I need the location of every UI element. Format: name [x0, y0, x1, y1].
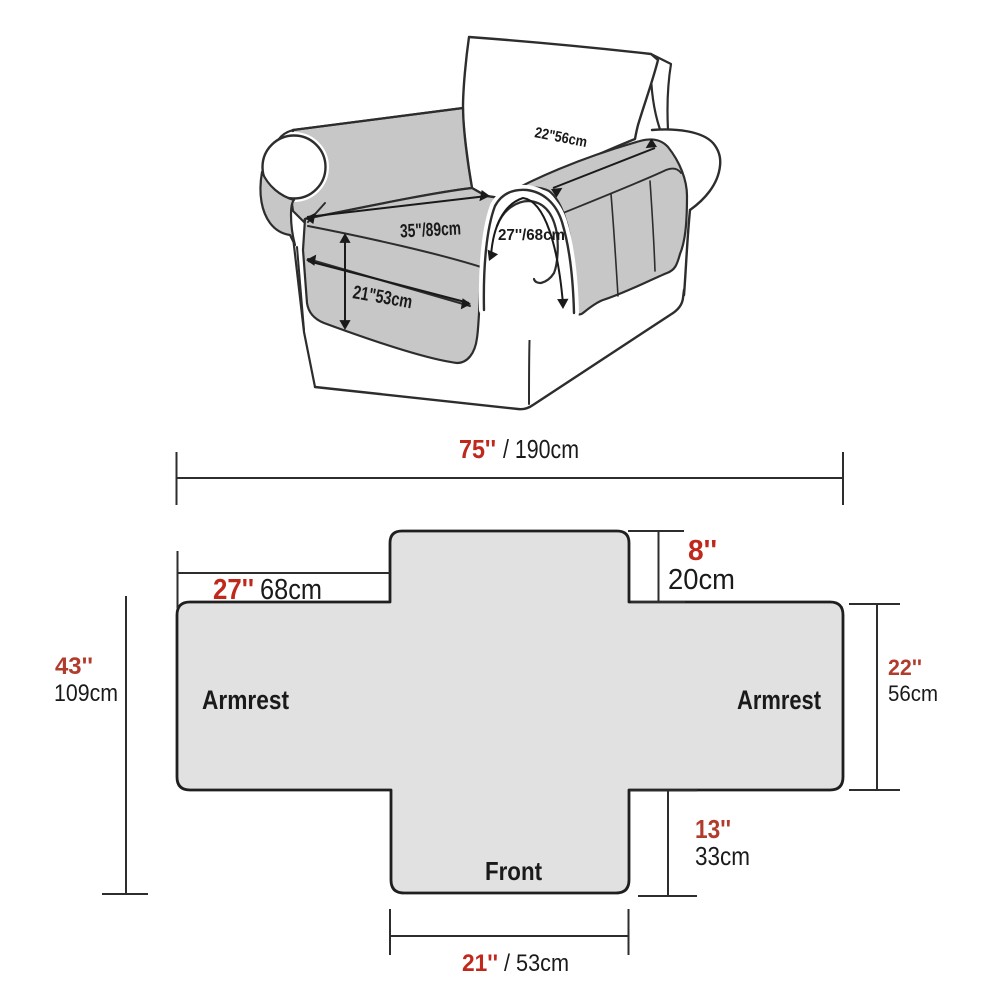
- svg-text:13'': 13'': [695, 814, 731, 844]
- svg-text:/ 53cm: / 53cm: [504, 950, 569, 977]
- svg-text:27''/68cm: 27''/68cm: [498, 227, 565, 244]
- svg-text:75'': 75'': [459, 434, 496, 464]
- svg-text:43'': 43'': [55, 653, 93, 680]
- svg-text:27'': 27'': [213, 574, 254, 606]
- svg-text:8'': 8'': [688, 535, 717, 567]
- svg-text:109cm: 109cm: [54, 680, 118, 707]
- svg-text:/ 190cm: / 190cm: [503, 434, 579, 464]
- svg-text:33cm: 33cm: [695, 841, 750, 871]
- svg-text:56cm: 56cm: [888, 681, 938, 706]
- svg-text:Armrest: Armrest: [202, 685, 289, 715]
- svg-text:68cm: 68cm: [260, 574, 322, 606]
- svg-text:20cm: 20cm: [668, 564, 735, 596]
- svg-text:Front: Front: [485, 856, 542, 886]
- svg-text:Armrest: Armrest: [737, 685, 821, 715]
- svg-text:35"/89cm: 35"/89cm: [400, 218, 462, 242]
- svg-text:22'': 22'': [888, 655, 922, 680]
- svg-text:21'': 21'': [462, 950, 498, 977]
